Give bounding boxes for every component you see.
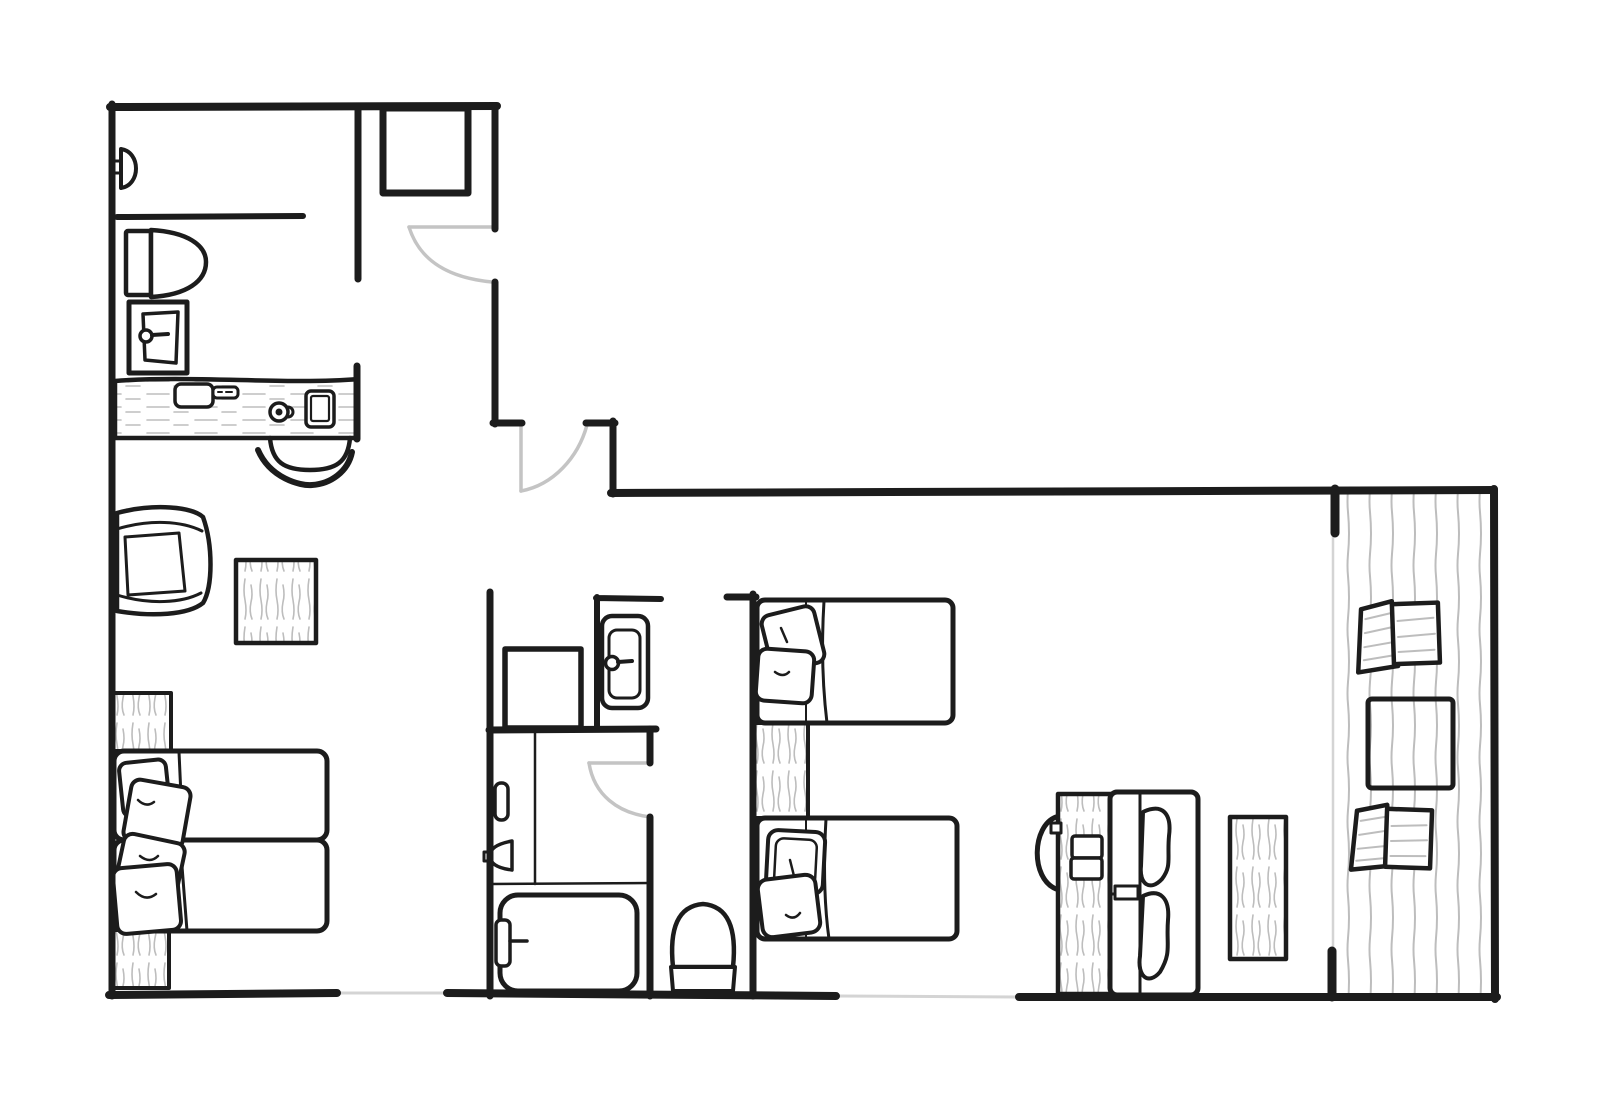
bedside-runner-bottom <box>112 930 169 988</box>
double-bed <box>1110 792 1198 995</box>
pillow <box>112 863 182 934</box>
wc-toilet <box>671 904 735 991</box>
wood-desk <box>115 379 358 438</box>
wall-corridor-top <box>611 490 1494 493</box>
bedside-runner-top <box>112 693 171 751</box>
pillow <box>1141 809 1170 886</box>
coffee-cup <box>270 403 293 421</box>
tub-faucet <box>496 920 510 966</box>
toiletry-bottle <box>495 783 508 820</box>
square-rug <box>236 560 316 643</box>
wall-right <box>1494 489 1495 999</box>
twin-beds-left <box>112 751 327 935</box>
runner-rug-between-beds <box>753 723 808 818</box>
pillow <box>757 874 822 939</box>
lounge-chair <box>1356 600 1440 673</box>
armchair <box>117 507 211 614</box>
floor-plan-canvas <box>0 0 1600 1118</box>
balcony-deck-floor <box>1337 493 1493 995</box>
pillow <box>755 648 814 704</box>
wall-bathroom-closet-divider <box>357 106 358 439</box>
bathtub <box>496 895 637 991</box>
bedside-wood-mat <box>1058 794 1111 994</box>
wall-top-left <box>110 106 497 107</box>
desk-pad <box>175 384 213 407</box>
wall-shower-partition <box>117 216 303 217</box>
side-rug <box>1230 817 1286 959</box>
lounge-chair <box>1351 804 1432 873</box>
slippers <box>1071 836 1102 879</box>
floor-plan-page <box>0 0 1600 1118</box>
vanity-sink <box>129 302 187 373</box>
remote <box>213 387 238 398</box>
pillow <box>1140 893 1169 978</box>
tablet <box>306 391 334 427</box>
toilet <box>126 230 206 297</box>
bottom-wall-gray-gap-center <box>836 996 1019 997</box>
wall-center-bath-top <box>489 729 656 730</box>
wash-basin <box>602 616 648 708</box>
wall-bottom <box>109 993 1497 997</box>
